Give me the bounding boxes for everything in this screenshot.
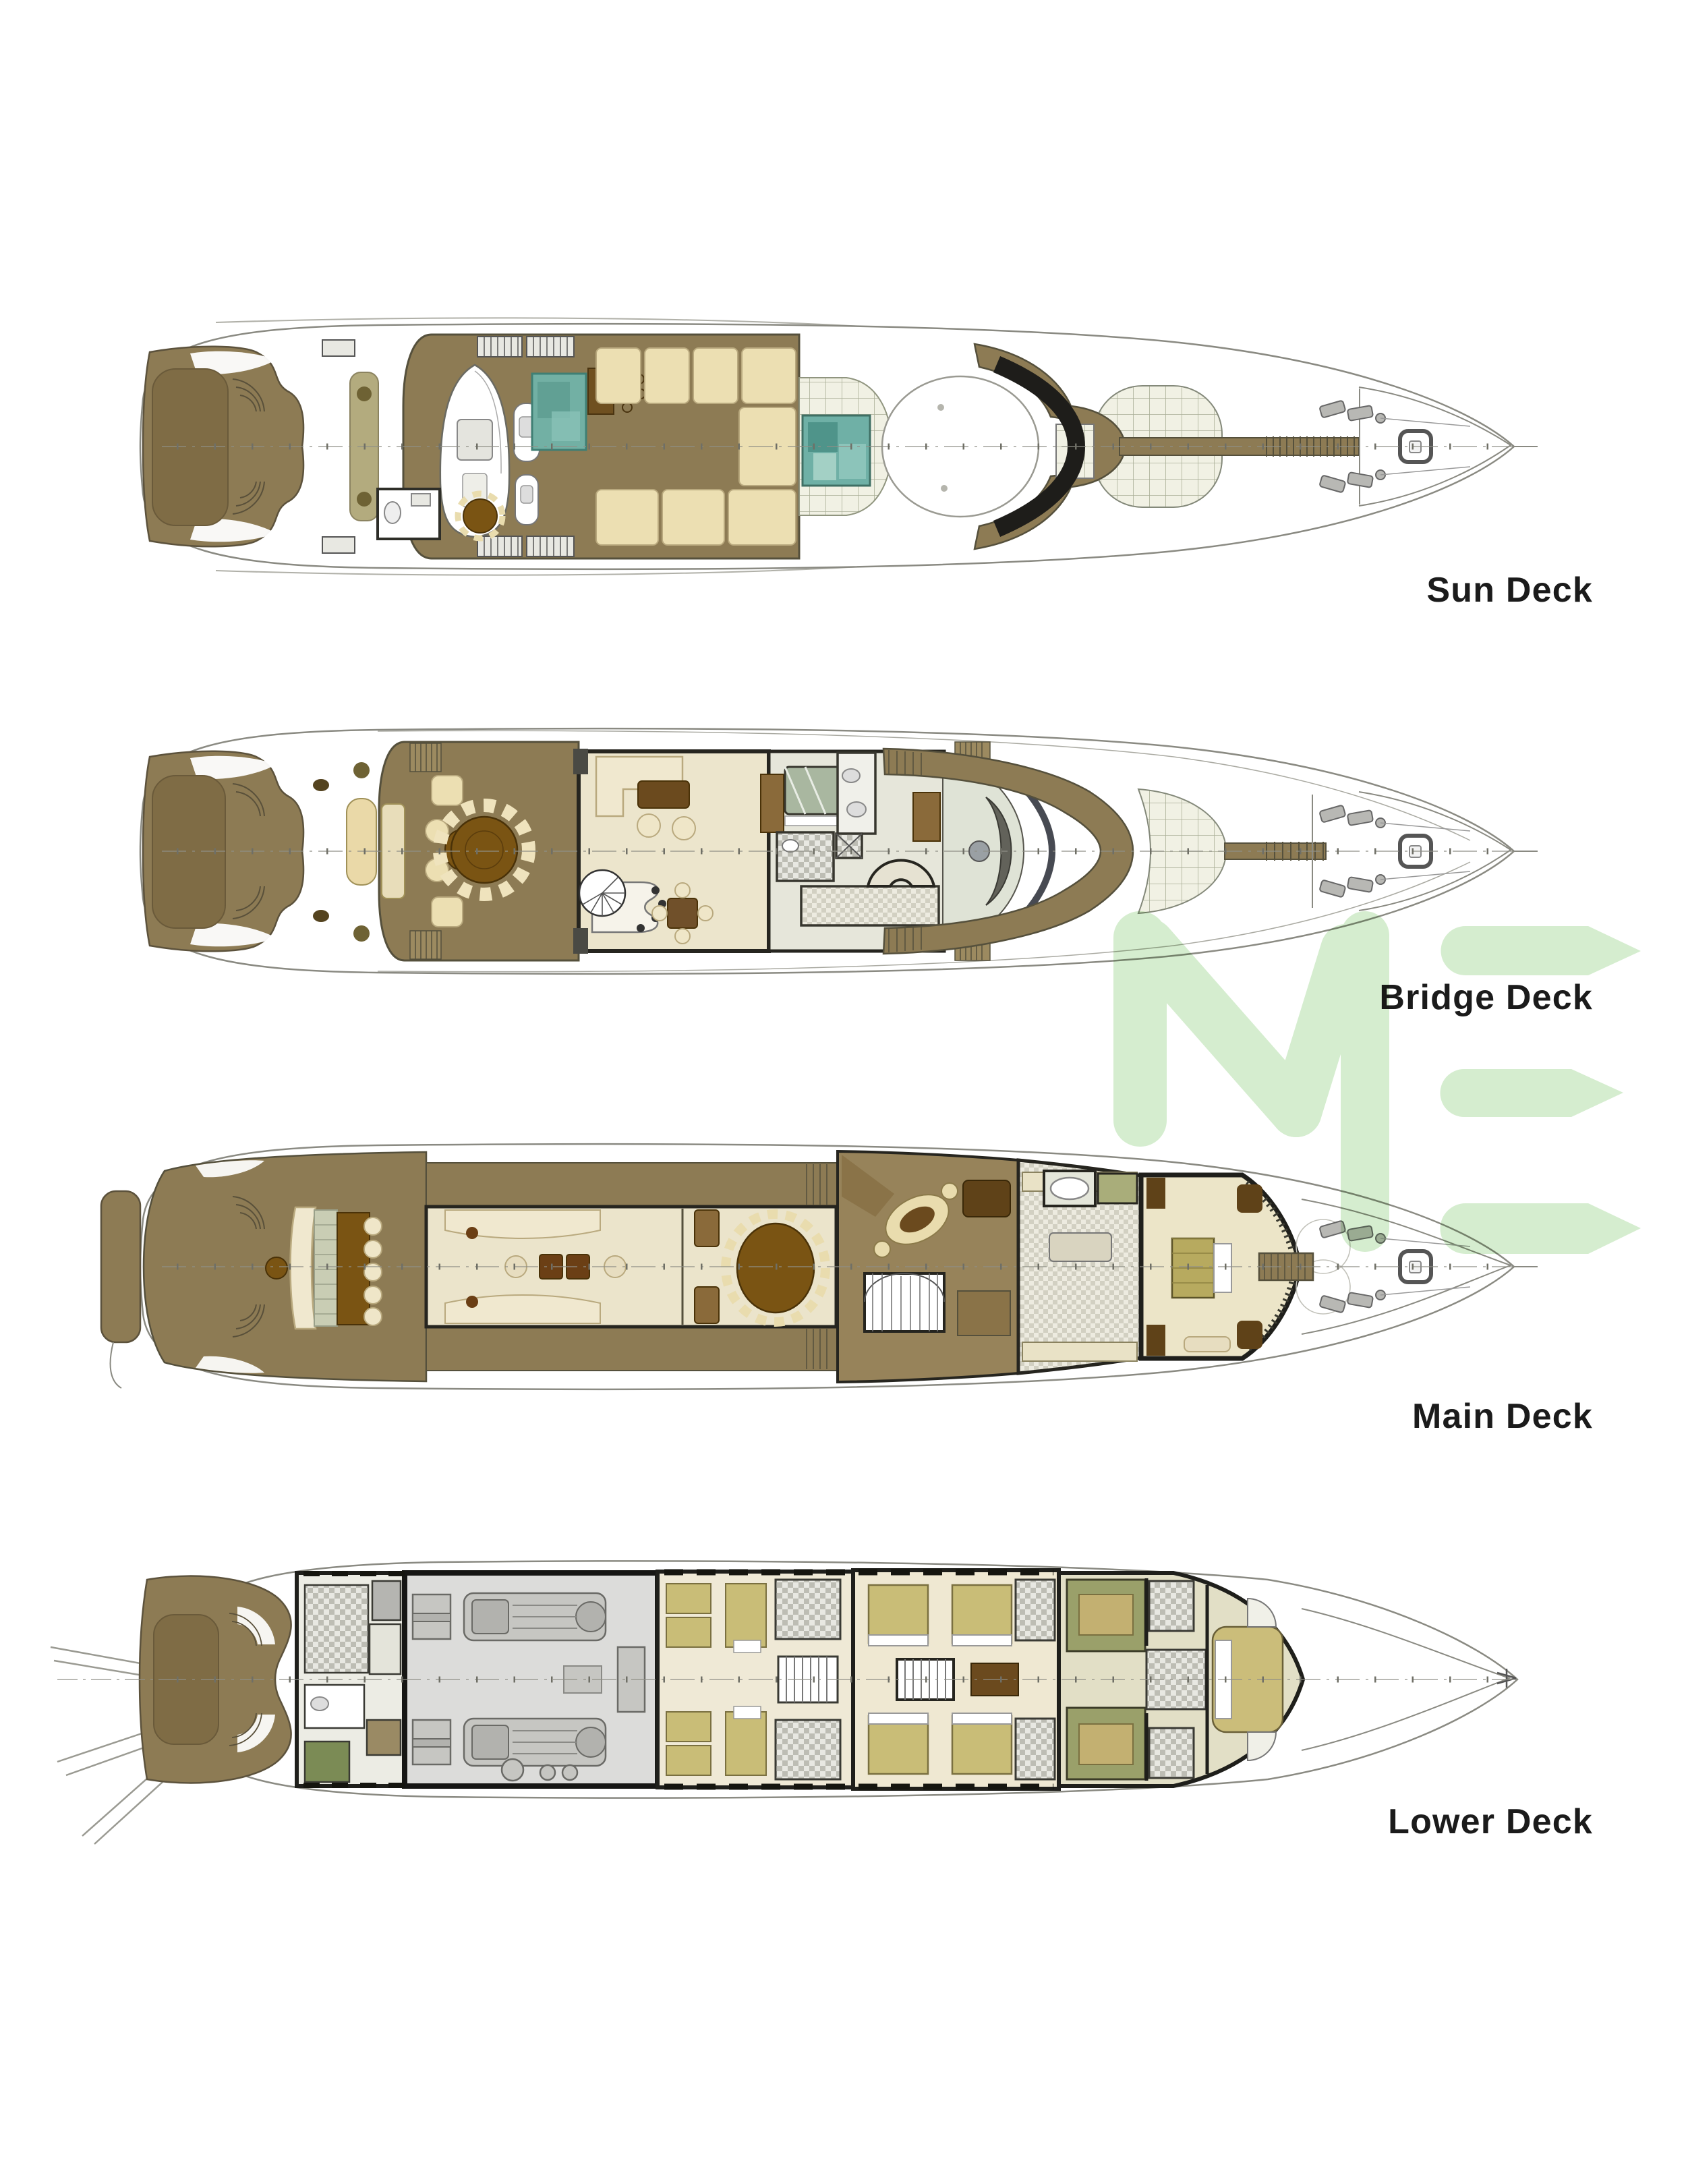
svg-text:Bridge Deck: Bridge Deck [1379, 978, 1593, 1017]
svg-text:Sun Deck: Sun Deck [1426, 571, 1593, 610]
svg-text:Lower Deck: Lower Deck [1388, 1802, 1593, 1841]
svg-text:Main Deck: Main Deck [1412, 1397, 1593, 1436]
